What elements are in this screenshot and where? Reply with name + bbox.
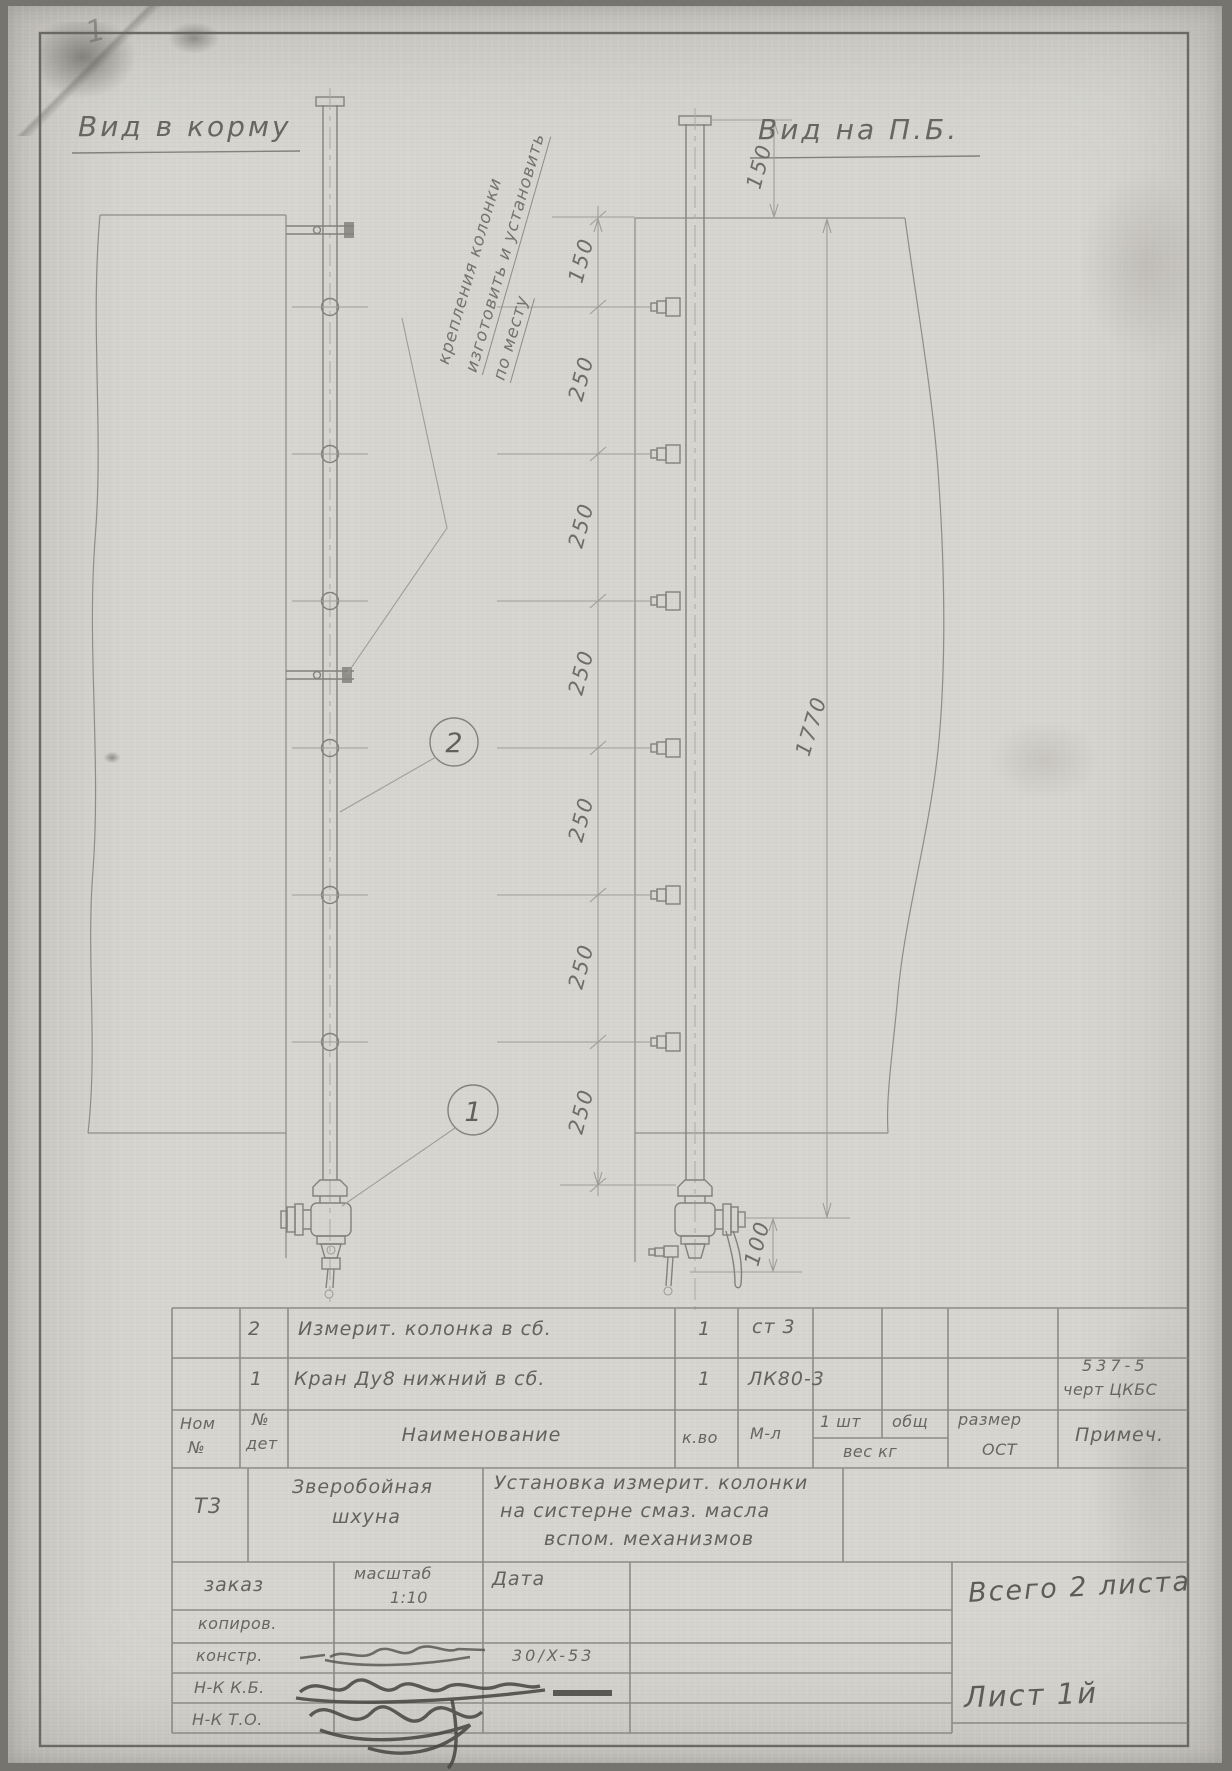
part-row-qty: 1: [698, 1318, 711, 1340]
header-size-2: ОСТ: [982, 1440, 1017, 1459]
part-row-det: 2: [248, 1318, 261, 1340]
part-row-qty: 1: [698, 1368, 711, 1390]
designer-signature: [300, 1646, 485, 1665]
right-view-tank-outline: [635, 218, 944, 1262]
part-row-mat: ЛК80-3: [748, 1368, 825, 1390]
dim-chain-0: 150: [564, 235, 599, 286]
header-det-1: №: [252, 1410, 269, 1429]
header-size-1: размер: [958, 1410, 1022, 1429]
callout-1-label: 1: [464, 1097, 481, 1128]
dim-overall: 1770: [791, 693, 832, 759]
callout-2-label: 2: [445, 728, 462, 759]
dim-chain-6: 250: [564, 1086, 599, 1137]
project-desc-3: вспом. механизмов: [544, 1528, 754, 1550]
date-label: Дата: [492, 1568, 545, 1590]
header-det-2: дет: [246, 1434, 278, 1453]
header-per-unit: 1 шт: [820, 1412, 861, 1431]
order-label: заказ: [204, 1574, 264, 1596]
part-row-note-source: черт ЦКБС: [1063, 1380, 1157, 1399]
note-leader-line: [347, 318, 447, 674]
scanned-drawing-sheet: 2 1: [0, 0, 1232, 1771]
part-row-det: 1: [250, 1368, 263, 1390]
dim-chain-3: 250: [564, 647, 599, 698]
dim-cap-to-deck: 150: [742, 141, 777, 192]
part-row-name: Кран Ду8 нижний в сб.: [294, 1368, 545, 1390]
header-nom-1: Ном: [180, 1414, 215, 1433]
left-lower-valve: [281, 1180, 351, 1298]
project-ship-2: шхуна: [332, 1506, 401, 1528]
left-measuring-column: [286, 88, 354, 1302]
header-name: Наименование: [288, 1424, 675, 1446]
part-row-name: Измерит. колонка в сб.: [298, 1318, 552, 1340]
part-row-mat: ст 3: [752, 1316, 796, 1338]
left-view-title-underline: [72, 151, 300, 153]
dim-chain-2: 250: [564, 500, 599, 551]
part-row-note-number: 537-5: [1082, 1356, 1149, 1375]
dim-chain-1: 250: [564, 353, 599, 404]
project-desc-2: на систерне смаз. масла: [500, 1500, 770, 1522]
project-desc-1: Установка измерит. колонки: [494, 1472, 808, 1494]
right-extension-lines: [497, 120, 850, 1272]
header-total: общ: [892, 1412, 928, 1431]
dimension-chain: [590, 206, 606, 1196]
right-column-cocks: [651, 298, 680, 1051]
designer-label: констр.: [196, 1646, 263, 1665]
header-qty: к.во: [682, 1428, 718, 1447]
scale-label: масштаб: [354, 1564, 432, 1583]
nkto-signature: [310, 1700, 482, 1768]
header-mat: М-л: [750, 1424, 781, 1443]
dim-chain-4: 250: [564, 794, 599, 845]
nkkb-label: Н-К К.Б.: [194, 1678, 265, 1697]
dim-chain-5: 250: [564, 941, 599, 992]
designer-date: 30/X-53: [512, 1646, 594, 1665]
left-view-title: Вид в корму: [78, 110, 292, 143]
header-nom-2: №: [188, 1438, 205, 1457]
copied-label: копиров.: [198, 1614, 277, 1633]
header-note: Примеч.: [1075, 1424, 1164, 1446]
nkto-label: Н-К Т.О.: [192, 1710, 263, 1729]
left-view-tank-outline: [88, 215, 286, 1258]
nkkb-signature: [296, 1680, 612, 1702]
project-code: Т3: [194, 1494, 222, 1518]
scale-value: 1:10: [390, 1588, 428, 1607]
right-view-title-underline: [750, 156, 980, 158]
right-measuring-column: [679, 108, 711, 1310]
header-weight: вес кг: [843, 1442, 897, 1461]
right-view-title: Вид на П.Б.: [758, 113, 959, 146]
right-lower-valve: [649, 1180, 745, 1295]
sheet-number: Лист 1й: [963, 1676, 1098, 1715]
project-ship-1: Зверобойная: [292, 1476, 433, 1498]
